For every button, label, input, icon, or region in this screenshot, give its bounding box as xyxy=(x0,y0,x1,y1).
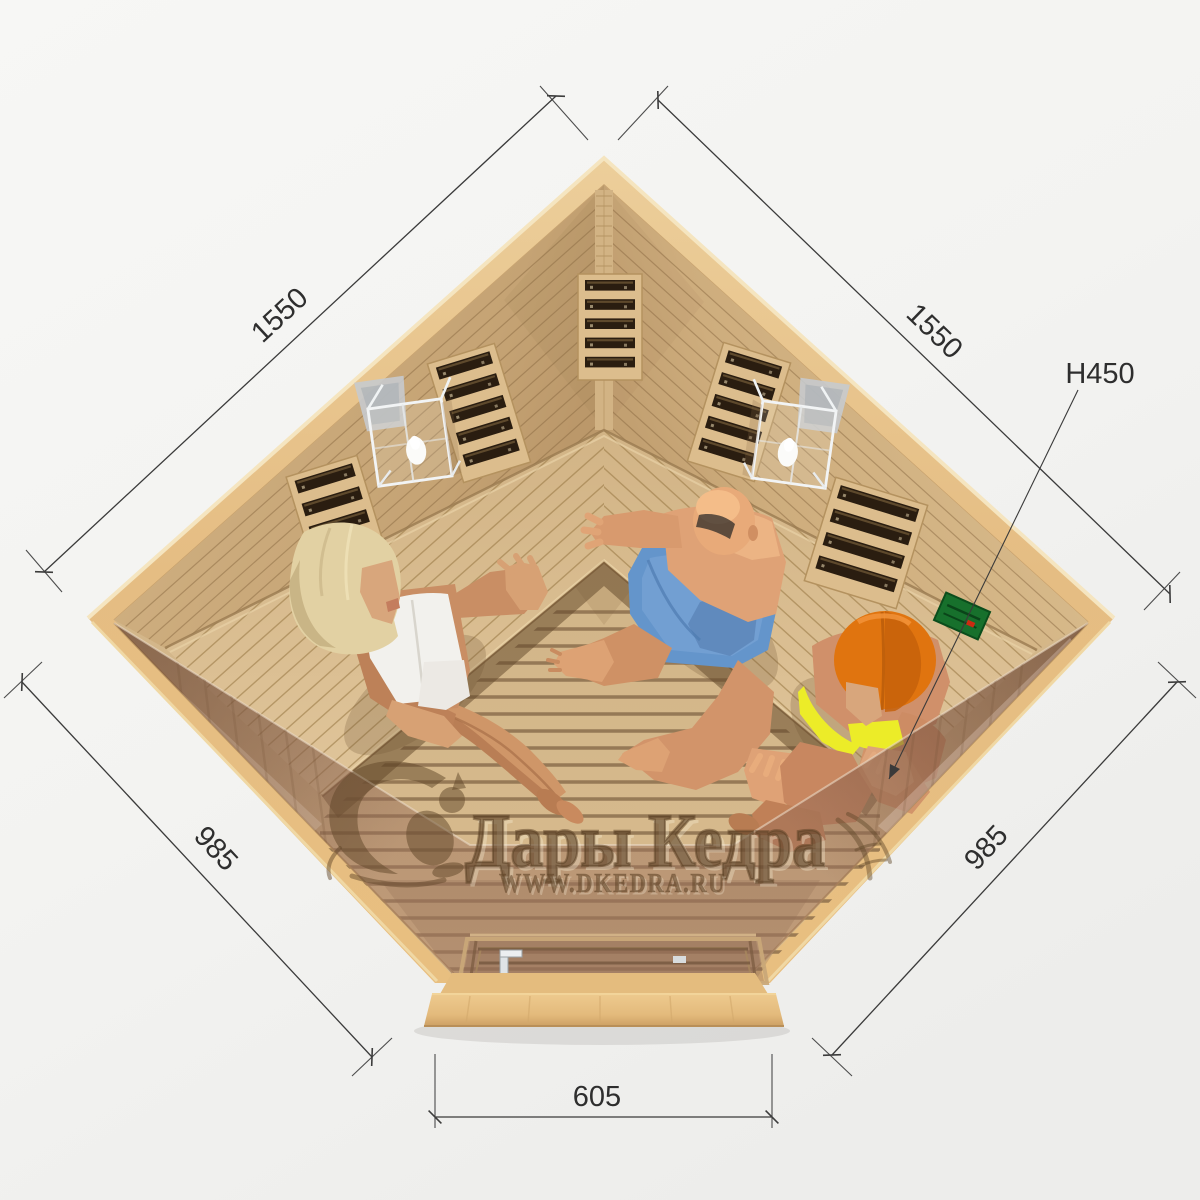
svg-text:605: 605 xyxy=(573,1081,621,1113)
svg-text:WWW.DKEDRA.RU: WWW.DKEDRA.RU xyxy=(499,868,726,898)
svg-text:H450: H450 xyxy=(1065,358,1134,390)
